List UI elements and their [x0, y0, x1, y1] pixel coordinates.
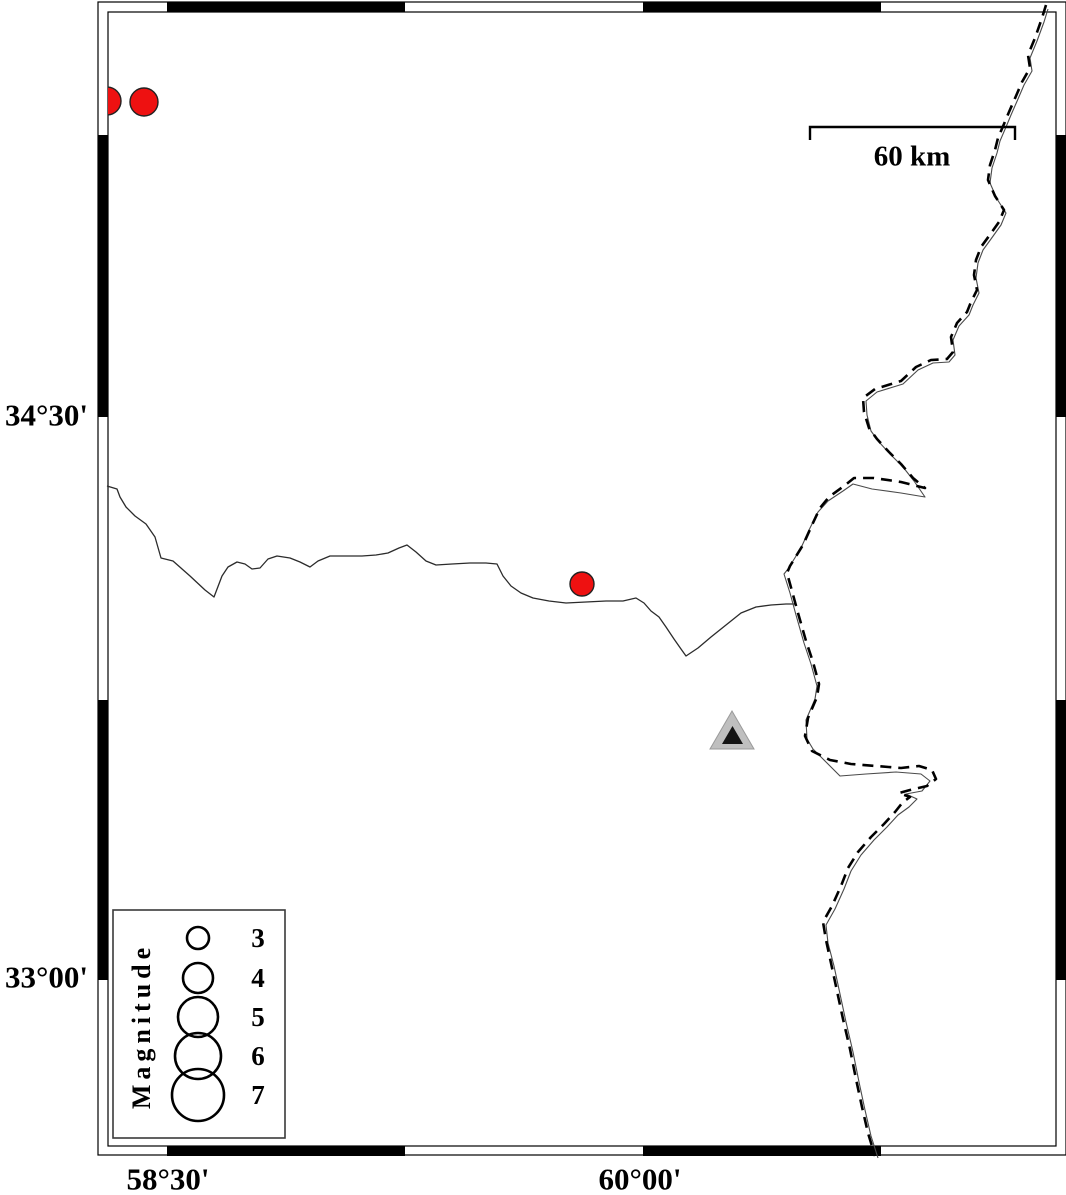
- legend-magnitude-value: 6: [251, 1041, 265, 1071]
- scale-bar-label: 60 km: [874, 143, 951, 172]
- border-solid-line: [784, 9, 1048, 1158]
- epicenter-circle: [570, 572, 594, 596]
- epicenter-circle: [93, 87, 121, 115]
- scale-bar-line: [810, 127, 1015, 140]
- border-dashed-line: [787, 5, 1046, 1156]
- legend-magnitude-value: 4: [251, 963, 265, 993]
- river-line: [107, 486, 796, 656]
- frame-band-segment: [167, 2, 405, 12]
- lat-label: 34°30': [5, 400, 88, 431]
- frame-band-segment: [1056, 135, 1066, 417]
- frame-band-segment: [98, 700, 108, 980]
- legend-magnitude-value: 5: [251, 1002, 265, 1032]
- frame-band-segment: [98, 135, 108, 417]
- lat-label: 33°00': [5, 962, 88, 993]
- frame-band-segment: [1056, 700, 1066, 980]
- legend-magnitude-value: 3: [251, 923, 265, 953]
- map-canvas: 34567: [0, 0, 1066, 1195]
- legend-magnitude-value: 7: [251, 1080, 265, 1110]
- legend-title: Magnitude: [129, 943, 155, 1109]
- lon-label: 60°00': [598, 1164, 681, 1195]
- lon-label: 58°30': [126, 1164, 209, 1195]
- map-figure: 34567 34°30' 33°00' 58°30' 60°00' 60 km …: [0, 0, 1066, 1195]
- epicenter-circle: [130, 88, 158, 116]
- frame-band-segment: [643, 2, 881, 12]
